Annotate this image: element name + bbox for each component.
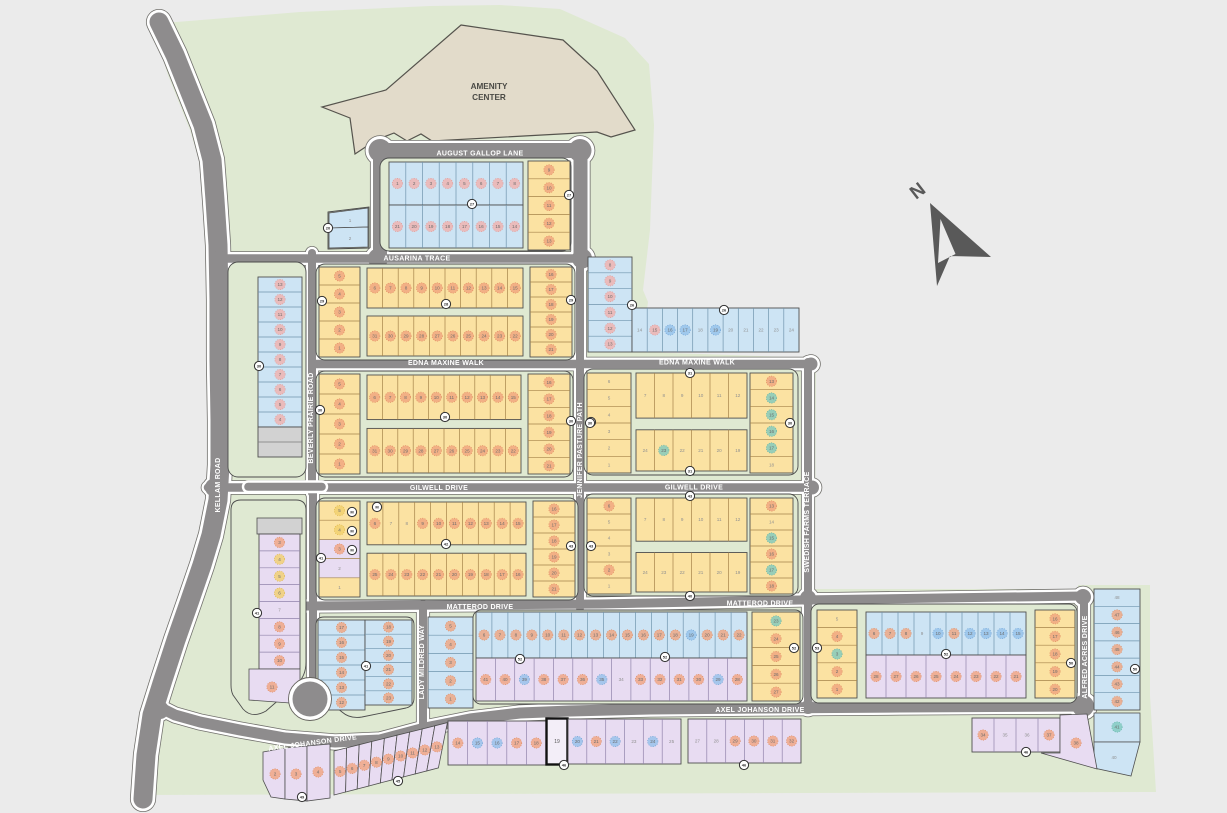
svg-text:15: 15 [1015,631,1021,636]
svg-text:9: 9 [681,517,684,522]
svg-text:5: 5 [339,769,342,774]
svg-text:21: 21 [436,572,442,577]
svg-text:31: 31 [770,739,776,744]
svg-text:15: 15 [769,412,775,417]
svg-text:19: 19 [468,572,474,577]
svg-text:5: 5 [449,624,452,629]
svg-text:6: 6 [279,387,282,392]
svg-text:1: 1 [836,687,839,692]
svg-text:13: 13 [769,504,775,509]
svg-text:14: 14 [512,224,518,229]
svg-text:21: 21 [698,448,704,453]
svg-text:5: 5 [338,508,341,513]
svg-text:23: 23 [404,572,410,577]
svg-text:21: 21 [743,328,749,333]
svg-text:30: 30 [388,448,394,453]
svg-text:11: 11 [608,310,613,315]
svg-text:12: 12 [735,517,741,522]
svg-text:41: 41 [1114,725,1120,730]
svg-text:27: 27 [893,674,899,679]
svg-text:17: 17 [769,446,775,451]
svg-text:31: 31 [677,677,683,682]
svg-text:18: 18 [445,224,451,229]
svg-text:10: 10 [277,327,283,332]
svg-text:30: 30 [388,334,394,339]
svg-text:16: 16 [339,640,345,645]
svg-text:20: 20 [326,226,331,231]
svg-text:16: 16 [1052,616,1058,621]
svg-text:17: 17 [657,633,663,638]
svg-text:15: 15 [769,536,775,541]
svg-text:20: 20 [575,739,581,744]
svg-text:12: 12 [577,633,583,638]
svg-text:27: 27 [470,202,475,207]
svg-text:2: 2 [836,669,839,674]
svg-text:11: 11 [452,521,457,526]
svg-text:3: 3 [278,540,281,545]
svg-text:36: 36 [1024,733,1030,738]
svg-text:25: 25 [933,674,939,679]
svg-text:16: 16 [551,507,557,512]
svg-text:45: 45 [1114,647,1120,652]
svg-text:28: 28 [873,674,879,679]
svg-text:15: 15 [511,395,517,400]
svg-text:1: 1 [338,462,341,467]
svg-text:13: 13 [983,631,989,636]
svg-text:15: 15 [625,633,631,638]
svg-text:22: 22 [736,633,742,638]
svg-text:32: 32 [789,739,795,744]
svg-text:2: 2 [338,328,341,333]
svg-text:43: 43 [569,544,574,549]
svg-text:47: 47 [1114,613,1120,618]
svg-text:2: 2 [413,181,416,186]
svg-text:2: 2 [608,446,611,451]
svg-text:21: 21 [698,570,704,575]
svg-text:32: 32 [657,677,663,682]
svg-text:49: 49 [300,795,305,800]
svg-text:6: 6 [374,286,377,291]
svg-text:30: 30 [318,408,323,413]
svg-text:MATTEROD DRIVE: MATTEROD DRIVE [727,601,794,608]
svg-text:6: 6 [873,631,876,636]
svg-text:14: 14 [637,328,643,333]
svg-text:11: 11 [561,633,566,638]
svg-text:2: 2 [349,236,352,241]
svg-text:14: 14 [500,521,506,526]
svg-text:GILWELL DRIVE: GILWELL DRIVE [410,485,468,492]
svg-text:53: 53 [815,646,820,651]
svg-text:AUSARINA TRACE: AUSARINA TRACE [384,256,451,263]
svg-text:12: 12 [735,393,741,398]
svg-text:4: 4 [279,417,282,422]
svg-text:15: 15 [652,328,658,333]
svg-text:AMENITY: AMENITY [471,82,508,91]
svg-text:10: 10 [698,517,704,522]
svg-text:8: 8 [404,395,407,400]
svg-text:8: 8 [905,631,908,636]
svg-text:37: 37 [1046,733,1052,738]
svg-text:5: 5 [338,274,341,279]
svg-text:18: 18 [548,302,554,307]
svg-text:2: 2 [338,566,341,571]
svg-text:21: 21 [1013,674,1019,679]
svg-text:SWEDISH FARMS TERRACE: SWEDISH FARMS TERRACE [804,471,811,572]
svg-text:21: 21 [721,633,727,638]
svg-text:40: 40 [502,677,508,682]
svg-text:17: 17 [551,523,557,528]
svg-text:41: 41 [483,677,489,682]
svg-text:7: 7 [889,631,892,636]
svg-text:17: 17 [548,287,554,292]
svg-text:30: 30 [751,739,757,744]
svg-text:12: 12 [277,297,283,302]
svg-text:BEVERLY PRAIRIE ROAD: BEVERLY PRAIRIE ROAD [308,372,315,463]
svg-text:1: 1 [608,462,611,467]
svg-text:3: 3 [836,652,839,657]
svg-text:22: 22 [758,328,764,333]
svg-text:34: 34 [619,677,625,682]
svg-text:1: 1 [396,181,399,186]
svg-text:11: 11 [952,631,957,636]
svg-text:23: 23 [386,696,392,701]
svg-text:16: 16 [641,633,647,638]
svg-text:6: 6 [483,633,486,638]
svg-text:12: 12 [967,631,973,636]
svg-text:23: 23 [661,570,667,575]
svg-text:28: 28 [444,302,449,307]
svg-text:22: 22 [680,570,686,575]
svg-text:16: 16 [546,380,552,385]
svg-text:24: 24 [789,328,795,333]
svg-text:7: 7 [363,763,366,768]
svg-text:3: 3 [608,429,611,434]
svg-text:8: 8 [405,286,408,291]
svg-text:7: 7 [390,521,393,526]
svg-text:JENNIFER PASTURE PATH: JENNIFER PASTURE PATH [577,402,584,498]
svg-text:12: 12 [607,326,613,331]
svg-text:EDNA MAXINE WALK: EDNA MAXINE WALK [408,360,484,367]
svg-text:40: 40 [688,594,693,599]
svg-text:9: 9 [548,168,551,173]
svg-text:11: 11 [270,685,275,690]
svg-text:12: 12 [468,521,474,526]
svg-text:16: 16 [769,552,775,557]
svg-text:42: 42 [444,542,449,547]
svg-text:16: 16 [515,572,521,577]
svg-text:25: 25 [773,654,779,659]
svg-text:46: 46 [1114,630,1120,635]
svg-text:30: 30 [788,421,793,426]
svg-text:14: 14 [769,396,775,401]
svg-text:17: 17 [683,328,689,333]
svg-text:13: 13 [339,685,345,690]
svg-text:5: 5 [278,574,281,579]
svg-text:10: 10 [546,185,552,190]
svg-text:25: 25 [465,448,471,453]
svg-text:10: 10 [935,631,941,636]
svg-text:38: 38 [541,677,547,682]
svg-text:43: 43 [589,544,594,549]
svg-text:1: 1 [338,346,341,351]
svg-text:16: 16 [548,272,554,277]
svg-text:18: 18 [534,741,540,746]
svg-text:13: 13 [481,286,487,291]
svg-text:13: 13 [484,521,490,526]
svg-text:14: 14 [999,631,1005,636]
svg-text:6: 6 [480,181,483,186]
svg-text:23: 23 [661,448,667,453]
svg-text:8: 8 [513,181,516,186]
svg-text:25: 25 [669,739,675,744]
svg-text:6: 6 [374,521,377,526]
svg-text:4: 4 [338,402,341,407]
svg-text:10: 10 [436,521,442,526]
svg-text:30: 30 [696,677,702,682]
svg-text:40: 40 [1111,755,1117,760]
svg-text:20: 20 [717,448,723,453]
svg-text:4: 4 [278,557,281,562]
svg-text:6: 6 [608,379,611,384]
svg-text:LADY MILDRED WAY: LADY MILDRED WAY [419,625,426,700]
svg-text:20: 20 [386,653,392,658]
svg-text:5: 5 [608,396,611,401]
svg-text:8: 8 [279,357,282,362]
svg-text:3: 3 [338,547,341,552]
svg-text:AUGUST GALLOP LANE: AUGUST GALLOP LANE [437,151,524,158]
svg-text:26: 26 [450,334,456,339]
svg-text:2: 2 [449,678,452,683]
svg-text:8: 8 [375,760,378,765]
svg-text:11: 11 [717,517,722,522]
svg-text:MATTEROD DRIVE: MATTEROD DRIVE [447,604,514,611]
svg-text:10: 10 [545,633,551,638]
svg-text:23: 23 [497,334,503,339]
svg-text:18: 18 [769,462,775,467]
svg-text:14: 14 [609,633,615,638]
svg-text:17: 17 [1052,634,1058,639]
svg-text:3: 3 [338,310,341,315]
svg-text:13: 13 [277,282,283,287]
svg-text:10: 10 [698,393,704,398]
svg-text:13: 13 [546,239,552,244]
svg-text:20: 20 [546,447,552,452]
svg-text:15: 15 [513,286,519,291]
svg-text:46: 46 [1024,750,1029,755]
svg-text:12: 12 [465,395,471,400]
svg-text:27: 27 [434,448,440,453]
svg-text:9: 9 [387,757,390,762]
svg-text:22: 22 [386,681,392,686]
svg-text:19: 19 [386,639,392,644]
svg-text:23: 23 [774,328,780,333]
svg-text:8: 8 [515,633,518,638]
svg-text:2: 2 [338,442,341,447]
svg-text:24: 24 [650,739,656,744]
svg-text:31: 31 [372,334,378,339]
svg-text:52: 52 [944,652,949,657]
svg-text:CENTER: CENTER [472,93,506,102]
svg-text:10: 10 [607,294,613,299]
svg-text:4: 4 [608,536,611,541]
svg-text:18: 18 [386,625,392,630]
svg-text:9: 9 [609,278,612,283]
svg-text:24: 24 [773,636,779,641]
svg-text:29: 29 [733,739,739,744]
svg-text:12: 12 [339,700,345,705]
svg-text:21: 21 [395,224,401,229]
svg-text:8: 8 [406,521,409,526]
svg-text:31: 31 [688,469,693,474]
svg-text:15: 15 [475,741,481,746]
svg-text:23: 23 [773,619,779,624]
svg-text:46: 46 [562,763,567,768]
svg-text:24: 24 [643,448,649,453]
svg-text:22: 22 [513,334,519,339]
svg-text:EDNA MAXINE WALK: EDNA MAXINE WALK [659,360,735,367]
svg-text:22: 22 [420,572,426,577]
svg-text:17: 17 [514,741,520,746]
svg-text:7: 7 [497,181,500,186]
svg-text:2: 2 [274,772,277,777]
svg-text:13: 13 [480,395,486,400]
svg-text:1: 1 [349,218,352,223]
svg-text:20: 20 [728,328,734,333]
svg-text:19: 19 [554,739,560,745]
svg-text:48: 48 [1114,595,1120,600]
svg-text:34: 34 [980,733,986,738]
svg-text:7: 7 [644,393,647,398]
svg-text:24: 24 [481,334,487,339]
svg-text:8: 8 [663,517,666,522]
svg-text:9: 9 [681,393,684,398]
svg-text:24: 24 [953,674,959,679]
svg-text:25: 25 [372,572,378,577]
svg-text:19: 19 [713,328,719,333]
svg-text:14: 14 [455,741,461,746]
svg-text:20: 20 [548,332,554,337]
svg-text:41: 41 [319,556,324,561]
svg-text:3: 3 [449,660,452,665]
svg-text:30: 30 [257,364,262,369]
svg-text:16: 16 [667,328,673,333]
svg-text:29: 29 [715,677,721,682]
svg-text:42: 42 [1114,699,1120,704]
svg-text:12: 12 [466,286,472,291]
svg-text:19: 19 [548,317,554,322]
svg-text:20: 20 [1052,687,1058,692]
svg-text:39: 39 [522,677,528,682]
svg-text:28: 28 [419,334,425,339]
svg-text:13: 13 [769,379,775,384]
svg-text:21: 21 [551,587,557,592]
svg-text:24: 24 [480,448,486,453]
svg-text:46: 46 [742,763,747,768]
svg-text:7: 7 [389,286,392,291]
svg-text:27: 27 [567,193,572,198]
svg-text:23: 23 [973,674,979,679]
svg-text:13: 13 [434,744,440,749]
svg-text:13: 13 [593,633,599,638]
svg-text:20: 20 [452,572,458,577]
svg-text:26: 26 [630,303,635,308]
svg-text:12: 12 [546,221,552,226]
svg-text:4: 4 [338,527,341,532]
svg-text:22: 22 [511,448,517,453]
svg-text:17: 17 [462,224,468,229]
svg-text:4: 4 [449,642,452,647]
svg-text:10: 10 [277,658,283,663]
svg-text:20: 20 [412,224,418,229]
svg-text:9: 9 [531,633,534,638]
svg-text:11: 11 [717,393,722,398]
svg-text:31: 31 [372,448,378,453]
svg-text:20: 20 [705,633,711,638]
svg-text:20: 20 [717,570,723,575]
svg-text:27: 27 [695,739,701,744]
svg-text:9: 9 [420,395,423,400]
svg-text:15: 15 [339,655,345,660]
svg-text:14: 14 [497,286,503,291]
svg-text:35: 35 [599,677,605,682]
svg-text:3: 3 [430,181,433,186]
svg-text:16: 16 [479,224,485,229]
svg-text:11: 11 [547,203,552,208]
svg-text:5: 5 [338,382,341,387]
svg-text:3: 3 [295,772,298,777]
svg-text:36: 36 [580,677,586,682]
svg-text:18: 18 [769,584,775,589]
svg-text:26: 26 [449,448,455,453]
svg-text:43: 43 [1114,682,1120,687]
svg-text:20: 20 [551,571,557,576]
svg-text:4: 4 [446,181,449,186]
svg-text:37: 37 [561,677,567,682]
svg-text:1: 1 [338,585,341,590]
svg-text:43: 43 [688,494,693,499]
svg-text:41: 41 [255,611,260,616]
svg-text:41: 41 [364,664,369,669]
svg-text:26: 26 [722,308,727,313]
svg-text:8: 8 [278,624,281,629]
svg-text:9: 9 [921,631,924,636]
svg-text:7: 7 [278,608,281,613]
svg-text:50: 50 [1133,667,1138,672]
svg-text:30: 30 [443,415,448,420]
svg-text:7: 7 [389,395,392,400]
svg-text:10: 10 [434,395,440,400]
svg-text:17: 17 [339,625,345,630]
svg-text:19: 19 [735,448,741,453]
svg-text:29: 29 [403,334,409,339]
svg-text:17: 17 [769,568,775,573]
svg-text:19: 19 [689,633,695,638]
svg-text:26: 26 [773,672,779,677]
svg-text:29: 29 [569,298,574,303]
svg-text:28: 28 [418,448,424,453]
svg-text:45: 45 [396,779,401,784]
svg-text:30: 30 [569,419,574,424]
svg-text:15: 15 [495,224,501,229]
svg-text:17: 17 [500,572,506,577]
svg-text:18: 18 [673,633,679,638]
svg-text:18: 18 [1052,652,1058,657]
svg-text:GILWELL DRIVE: GILWELL DRIVE [665,485,723,492]
svg-text:18: 18 [484,572,490,577]
svg-text:9: 9 [420,286,423,291]
svg-text:14: 14 [495,395,501,400]
svg-text:38: 38 [1073,741,1079,746]
